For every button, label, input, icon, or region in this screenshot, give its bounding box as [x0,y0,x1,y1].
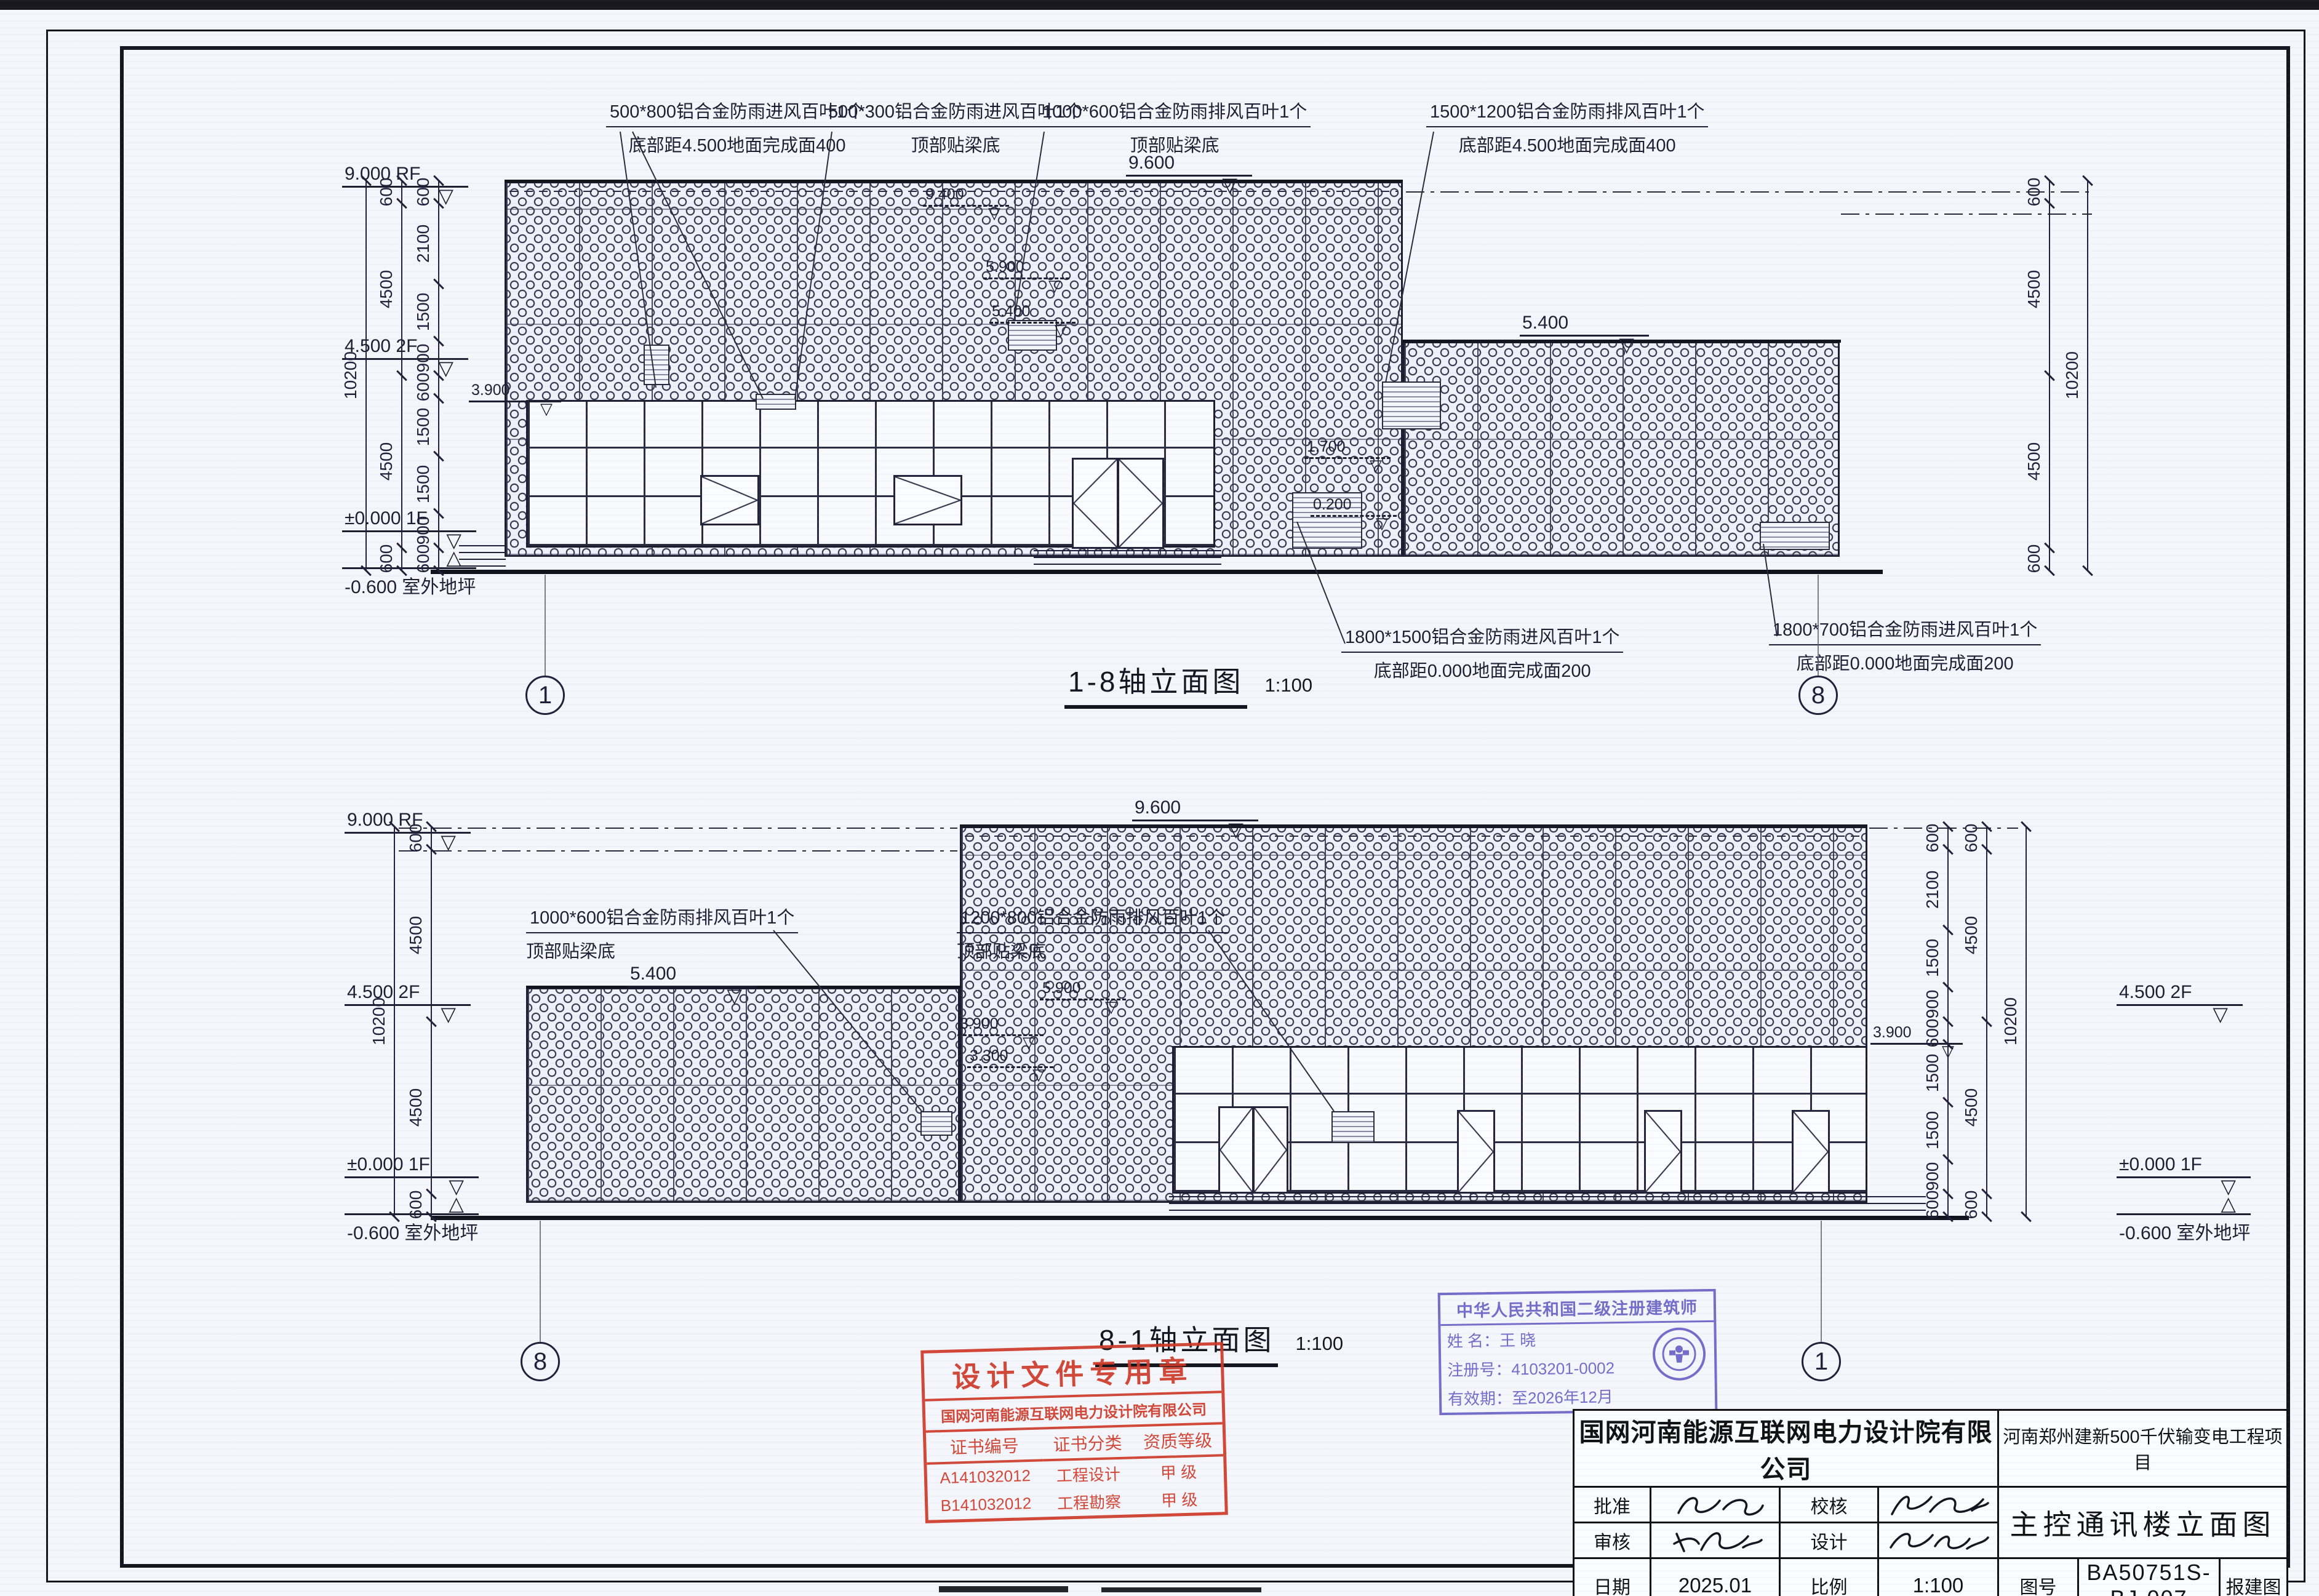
level-marker: 4.500 2F ▽ [342,336,468,360]
elev2-door-leaf-right [1253,1106,1288,1194]
level-marker: △ -0.600 室外地坪 [2117,1213,2251,1245]
fig-no-value: BA50751S-BJ-007 [2078,1558,2220,1596]
elev2-entrance-steps [1169,1196,1926,1216]
axis-bubble-1: 1 [1802,1342,1841,1381]
level-triangle-icon: △ [446,548,461,567]
signature-design [1878,1523,1998,1558]
level-marker: ±0.000 1F ▽ [345,1154,479,1178]
level-marker: △ -0.600 室外地坪 [345,1213,479,1245]
level-triangle-icon: ▽ [1105,999,1117,1014]
label-date: 日期 [1574,1558,1651,1596]
level-triangle-icon: △ [2221,1194,2236,1213]
level-triangle-icon: ▽ [1048,278,1061,293]
elev1-parapet-line [505,180,1403,183]
annotation-louvre: 1000*600铝合金防雨排风百叶1个 顶部贴梁底 [526,903,798,963]
level-triangle-icon: ▽ [1619,335,1634,354]
level-triangle-icon: ▽ [2213,1005,2228,1023]
annotation-louvre: 1800*700铝合金防雨进风百叶1个 底部距0.000地面完成面200 [1769,615,2041,675]
design-file-stamp: 设计文件专用章 国网河南能源互联网电力设计院有限公司 证书编号 证书分类 资质等… [920,1342,1228,1523]
level-marker: 9.600 ▽ [1132,797,1258,821]
label-approve: 批准 [1574,1487,1651,1523]
level-marker: 0.200 ▽ [1311,496,1397,517]
level-marker: 3.900 ▽ [957,1015,1044,1036]
scan-artifact-top [0,0,2319,10]
level-marker: ±0.000 1F ▽ [2117,1154,2251,1178]
signature-review [1651,1523,1780,1558]
elev1-door-leaf-left [1072,458,1119,549]
axis-bubble-8: 8 [1798,676,1838,715]
level-marker: 3.900 ▽ [469,381,561,402]
elev1-window [700,475,759,525]
scan-artifact-smudge [939,1586,1068,1592]
stage-label: 报建图 [2220,1558,2288,1596]
label-review: 审核 [1574,1523,1651,1558]
elev1-louvre-500x300 [756,394,796,410]
elev1-entrance-steps [1034,550,1221,572]
design-institute-name: 国网河南能源互联网电力设计院有限公司 [1574,1410,1998,1487]
level-triangle-icon: ▽ [441,1005,456,1023]
elev1-louvre-1800x700 [1760,522,1830,550]
elev1-louvre-1500x1200 [1382,381,1441,429]
level-triangle-icon: ▽ [1228,820,1243,839]
date-value: 2025.01 [1651,1558,1780,1596]
label-check: 校核 [1780,1487,1878,1523]
level-marker: 5.900 ▽ [1040,980,1126,1000]
elev2-door [1644,1110,1682,1194]
level-marker: 4.500 2F ▽ [345,982,471,1006]
level-triangle-icon: ▽ [727,986,742,1005]
architect-valid-until: 至2026年12月 [1512,1387,1613,1407]
label-design: 设计 [1780,1523,1878,1558]
axis-bubble-1: 1 [525,676,565,715]
level-triangle-icon: ▽ [438,359,453,377]
elev1-title: 1-8轴立面图 1:100 [1064,660,1312,709]
axis-bubble-8: 8 [521,1342,560,1381]
level-marker: 1.700 ▽ [1304,438,1391,459]
level-marker: 9.400 ▽ [923,186,1009,207]
level-triangle-icon: ▽ [1942,1043,1954,1058]
architect-name: 王 晓 [1499,1331,1536,1350]
signature-approve [1651,1487,1780,1523]
level-marker: △ -0.600 室外地坪 [342,567,476,599]
level-marker: 9.000 RF ▽ [345,810,471,834]
level-triangle-icon: ▽ [988,205,1000,220]
scan-artifact-smudge [1101,1587,1261,1592]
level-marker: 5.400 ▽ [628,964,757,988]
elev2-door [1457,1110,1495,1194]
architect-reg-no: 4103201-0002 [1511,1359,1615,1378]
annotation-louvre: 1200*800铝合金防雨排风百叶1个 顶部贴梁底 [957,903,1229,963]
level-marker: 9.000 RF ▽ [342,164,468,188]
title-block: 国网河南能源互联网电力设计院有限公司 河南郑州建新500千伏输变电工程项目 批准… [1573,1409,2288,1596]
level-triangle-icon: ▽ [438,186,453,205]
annotation-louvre: 1800*1500铝合金防雨进风百叶1个 底部距0.000地面完成面200 [1341,623,1623,682]
level-triangle-icon: ▽ [1055,322,1067,337]
level-triangle-icon: ▽ [1376,516,1388,530]
level-triangle-icon: ▽ [441,832,456,851]
project-name: 河南郑州建新500千伏输变电工程项目 [1998,1410,2288,1487]
level-triangle-icon: ▽ [540,401,553,416]
level-marker: 5.400 ▽ [1520,313,1649,337]
architect-stamp-title: 中华人民共和国二级注册建筑师 [1440,1291,1714,1326]
elev2-ground-line [431,1216,1969,1220]
elev2-louvre-1200x800 [1331,1111,1375,1143]
level-marker: ±0.000 1F ▽ [342,508,476,532]
scale-value: 1:100 [1878,1558,1998,1596]
signature-check [1878,1487,1998,1523]
elev2-louvre-1000x600 [920,1111,952,1136]
annotation-louvre: 1500*1200铝合金防雨排风百叶1个 底部距4.500地面完成面400 [1426,97,1708,157]
drawing-title: 主控通讯楼立面图 [1998,1487,2288,1558]
elev2-parapet-dash [965,836,1862,837]
architect-stamp: 中华人民共和国二级注册建筑师 姓 名：王 晓 注册号：4103201-0002 … [1438,1289,1718,1415]
level-triangle-icon: △ [449,1194,464,1213]
elev1-louvre-1000x600 [1008,320,1057,351]
level-triangle-icon: ▽ [1370,458,1382,473]
label-scale: 比例 [1780,1558,1878,1596]
level-triangle-icon: ▽ [1032,1067,1045,1082]
elev1-window [893,475,962,525]
design-file-stamp-title: 设计文件专用章 [924,1345,1221,1401]
elev1-ground-line [431,570,1883,574]
elev2-perforated-screen-left [526,988,960,1203]
level-marker: 5.400 ▽ [989,303,1076,324]
elev2-parapet-line [960,824,1867,828]
level-triangle-icon: ▽ [1222,175,1237,194]
elev1-louvre-500x800 [644,345,669,385]
annotation-louvre: 1000*600铝合金防雨排风百叶1个 顶部贴梁底 [1039,97,1311,157]
elev2-door [1792,1110,1830,1194]
level-marker: 3.300 ▽ [967,1047,1053,1068]
level-marker: 4.500 2F ▽ [2117,982,2243,1006]
level-marker: 5.900 ▽ [983,258,1069,279]
drawing-sheet: 9.000 RF ▽ 4.500 2F ▽ ±0.000 1F ▽ △ -0.6… [0,0,2319,1596]
level-marker: 3.900 ▽ [1870,1024,1963,1045]
label-fig-no: 图号 [1998,1558,2078,1596]
elev2-door-leaf-left [1218,1106,1254,1194]
elev1-door-leaf-right [1117,458,1164,549]
